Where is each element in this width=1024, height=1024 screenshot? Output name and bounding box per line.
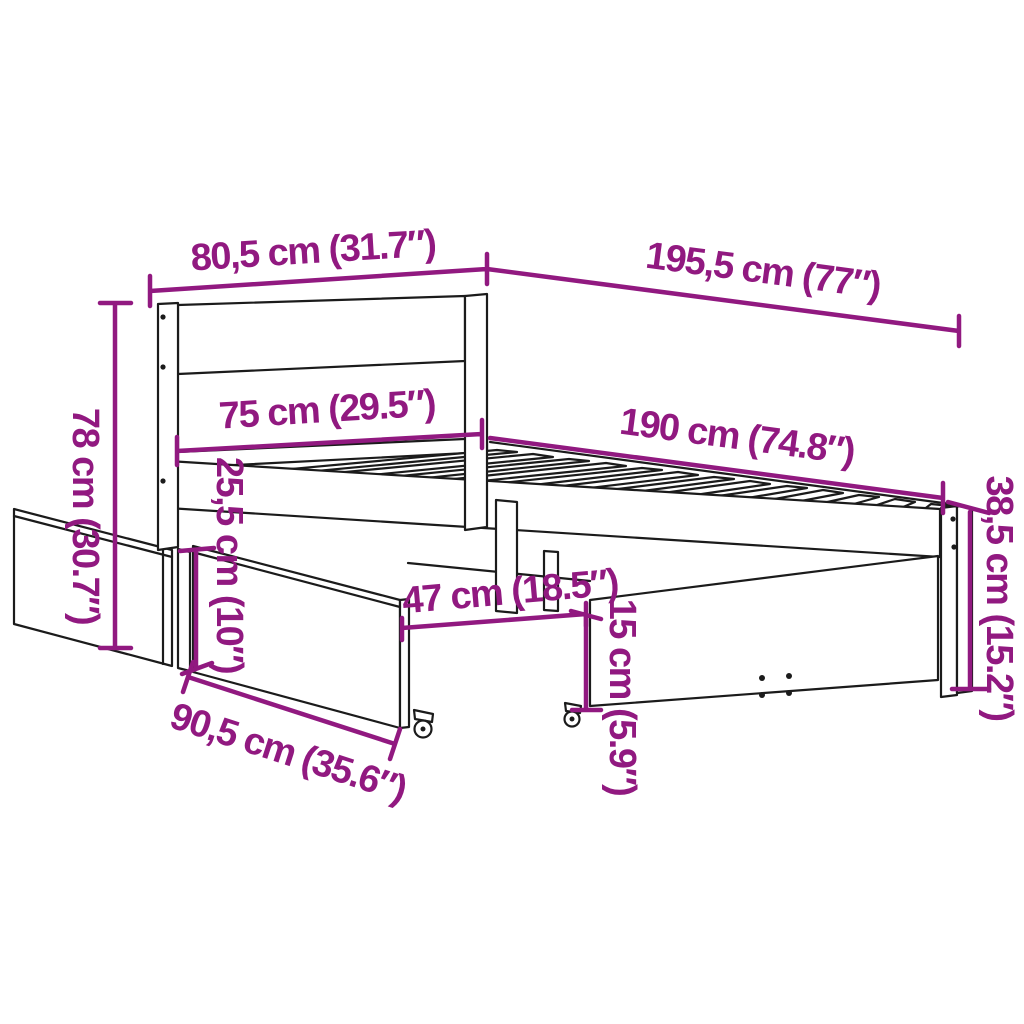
- dim-label-drawer-height: 15 cm (5.9″): [601, 599, 643, 796]
- dim-label-inner-width: 75 cm (29.5″): [218, 382, 436, 437]
- dim-label-rail-clearance: 25,5 cm (10″): [208, 457, 250, 673]
- caster-wheel: [565, 703, 582, 727]
- front-side-rail: [168, 461, 940, 557]
- bed-frame-diagram: 80,5 cm (31.7″) 195,5 cm (77″) 78 cm (30…: [0, 0, 1024, 1024]
- drawer-slide: [178, 549, 190, 671]
- dim-label-frame-side-height: 38,5 cm (15.2″): [978, 476, 1020, 721]
- caster-wheel: [414, 710, 433, 738]
- dim-label-inner-length: 190 cm (74.8″): [617, 401, 856, 473]
- dim-label-headboard-height: 78 cm (30.7″): [64, 408, 106, 624]
- product-dimension-diagram: 80,5 cm (31.7″) 195,5 cm (77″) 78 cm (30…: [0, 0, 1024, 1024]
- bed-line-art: [14, 294, 972, 738]
- dim-label-headboard-width: 80,5 cm (31.7″): [189, 223, 436, 280]
- foot-post-front: [941, 506, 957, 697]
